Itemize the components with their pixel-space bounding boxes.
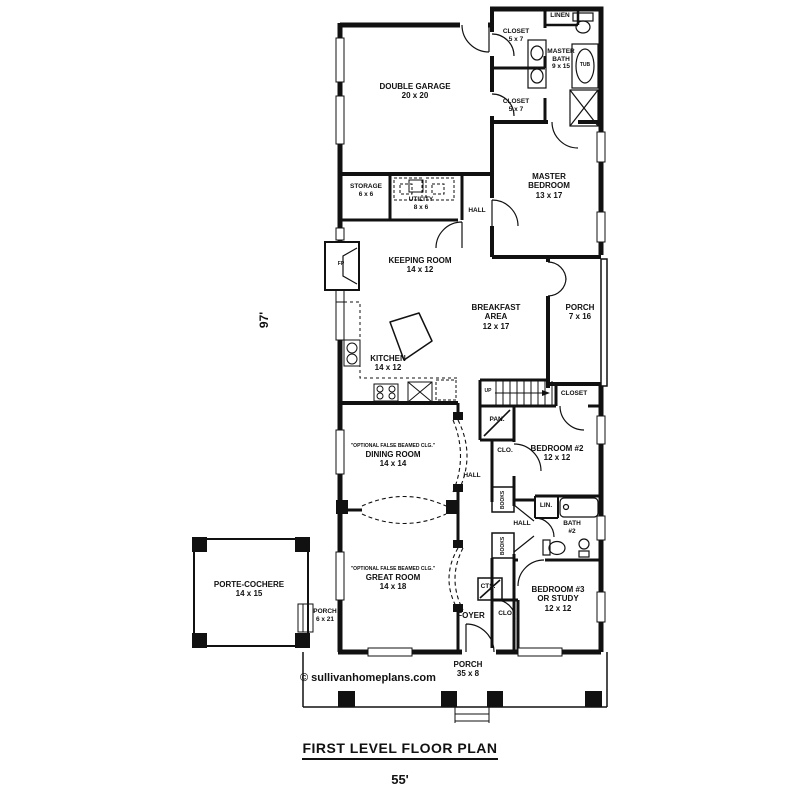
room-label-porch-bottom: PORCH35 x 8 xyxy=(454,660,483,679)
kitchen-fixtures xyxy=(344,302,458,402)
room-label-porch-left: PORCH6 x 21 xyxy=(313,608,336,623)
title-wrap: FIRST LEVEL FLOOR PLAN xyxy=(0,740,800,760)
room-label-double-garage: DOUBLE GARAGE20 x 20 xyxy=(379,82,450,101)
stairs-arrow xyxy=(542,390,550,396)
room-label-porte-cochere: PORTE-COCHERE14 x 15 xyxy=(214,580,284,599)
room-label-keeping-room: KEEPING ROOM14 x 12 xyxy=(388,256,451,275)
room-label-closet-stairs: CLOSET xyxy=(561,390,587,398)
tub-label: TUB xyxy=(580,63,590,69)
room-label-bath-2: BATH#2 xyxy=(563,520,581,535)
porch-posts xyxy=(338,691,602,707)
room-label-master-bath: MASTERBATH9 x 15 xyxy=(547,48,574,71)
room-label-hall-top: HALL xyxy=(468,207,485,215)
room-label-linen: LINEN xyxy=(550,12,570,20)
room-label-hall-lower: HALL xyxy=(513,520,530,528)
room-label-bedroom-3: BEDROOM #3OR STUDY12 x 12 xyxy=(532,585,585,613)
room-label-dining-room: "OPTIONAL FALSE BEAMED CLG." DINING ROOM… xyxy=(351,444,435,469)
room-label-storage: STORAGE6 x 6 xyxy=(350,183,382,198)
room-label-breakfast-area: BREAKFASTAREA12 x 17 xyxy=(472,303,521,331)
windows xyxy=(336,38,605,656)
room-label-foyer: FOYER xyxy=(457,611,485,620)
exterior-walls xyxy=(338,9,601,652)
room-label-porch-right: PORCH7 x 16 xyxy=(566,303,595,322)
height-dimension: 97' xyxy=(257,312,271,328)
right-porch-rail xyxy=(601,259,607,386)
copyright-text: © sullivanhomeplans.com xyxy=(300,672,436,684)
floor-plan-page: DOUBLE GARAGE20 x 20 CLOSET5 x 7 MASTERB… xyxy=(0,0,800,800)
stairs-up-label: UP xyxy=(485,389,492,395)
room-label-closet-mid: CLOSET5 x 7 xyxy=(503,98,529,113)
room-label-kitchen: KITCHEN14 x 12 xyxy=(370,354,406,373)
width-dimension: 55' xyxy=(0,772,800,787)
room-label-cts: CTS. xyxy=(481,583,496,591)
interior-walls xyxy=(340,9,601,652)
room-label-utility: UTILITY8 x 6 xyxy=(409,196,434,211)
books-label-2: BOOKS xyxy=(500,537,506,555)
room-label-master-bedroom: MASTERBEDROOM13 x 17 xyxy=(528,172,570,200)
fireplace-label: FP xyxy=(338,262,344,268)
room-label-clo-2: CLO. xyxy=(498,610,514,618)
room-label-hall-mid: HALL xyxy=(463,472,480,480)
room-label-closet-top: CLOSET5 x 7 xyxy=(503,28,529,43)
books-label-1: BOOKS xyxy=(500,491,506,509)
room-label-pantry: PAN. xyxy=(489,416,504,424)
page-title: FIRST LEVEL FLOOR PLAN xyxy=(302,740,497,760)
room-label-clo-1: CLO. xyxy=(497,447,513,455)
room-label-lin-2: LIN. xyxy=(540,502,552,510)
room-label-great-room: "OPTIONAL FALSE BEAMED CLG." GREAT ROOM1… xyxy=(351,567,435,592)
room-label-bedroom-2: BEDROOM #212 x 12 xyxy=(531,444,584,463)
